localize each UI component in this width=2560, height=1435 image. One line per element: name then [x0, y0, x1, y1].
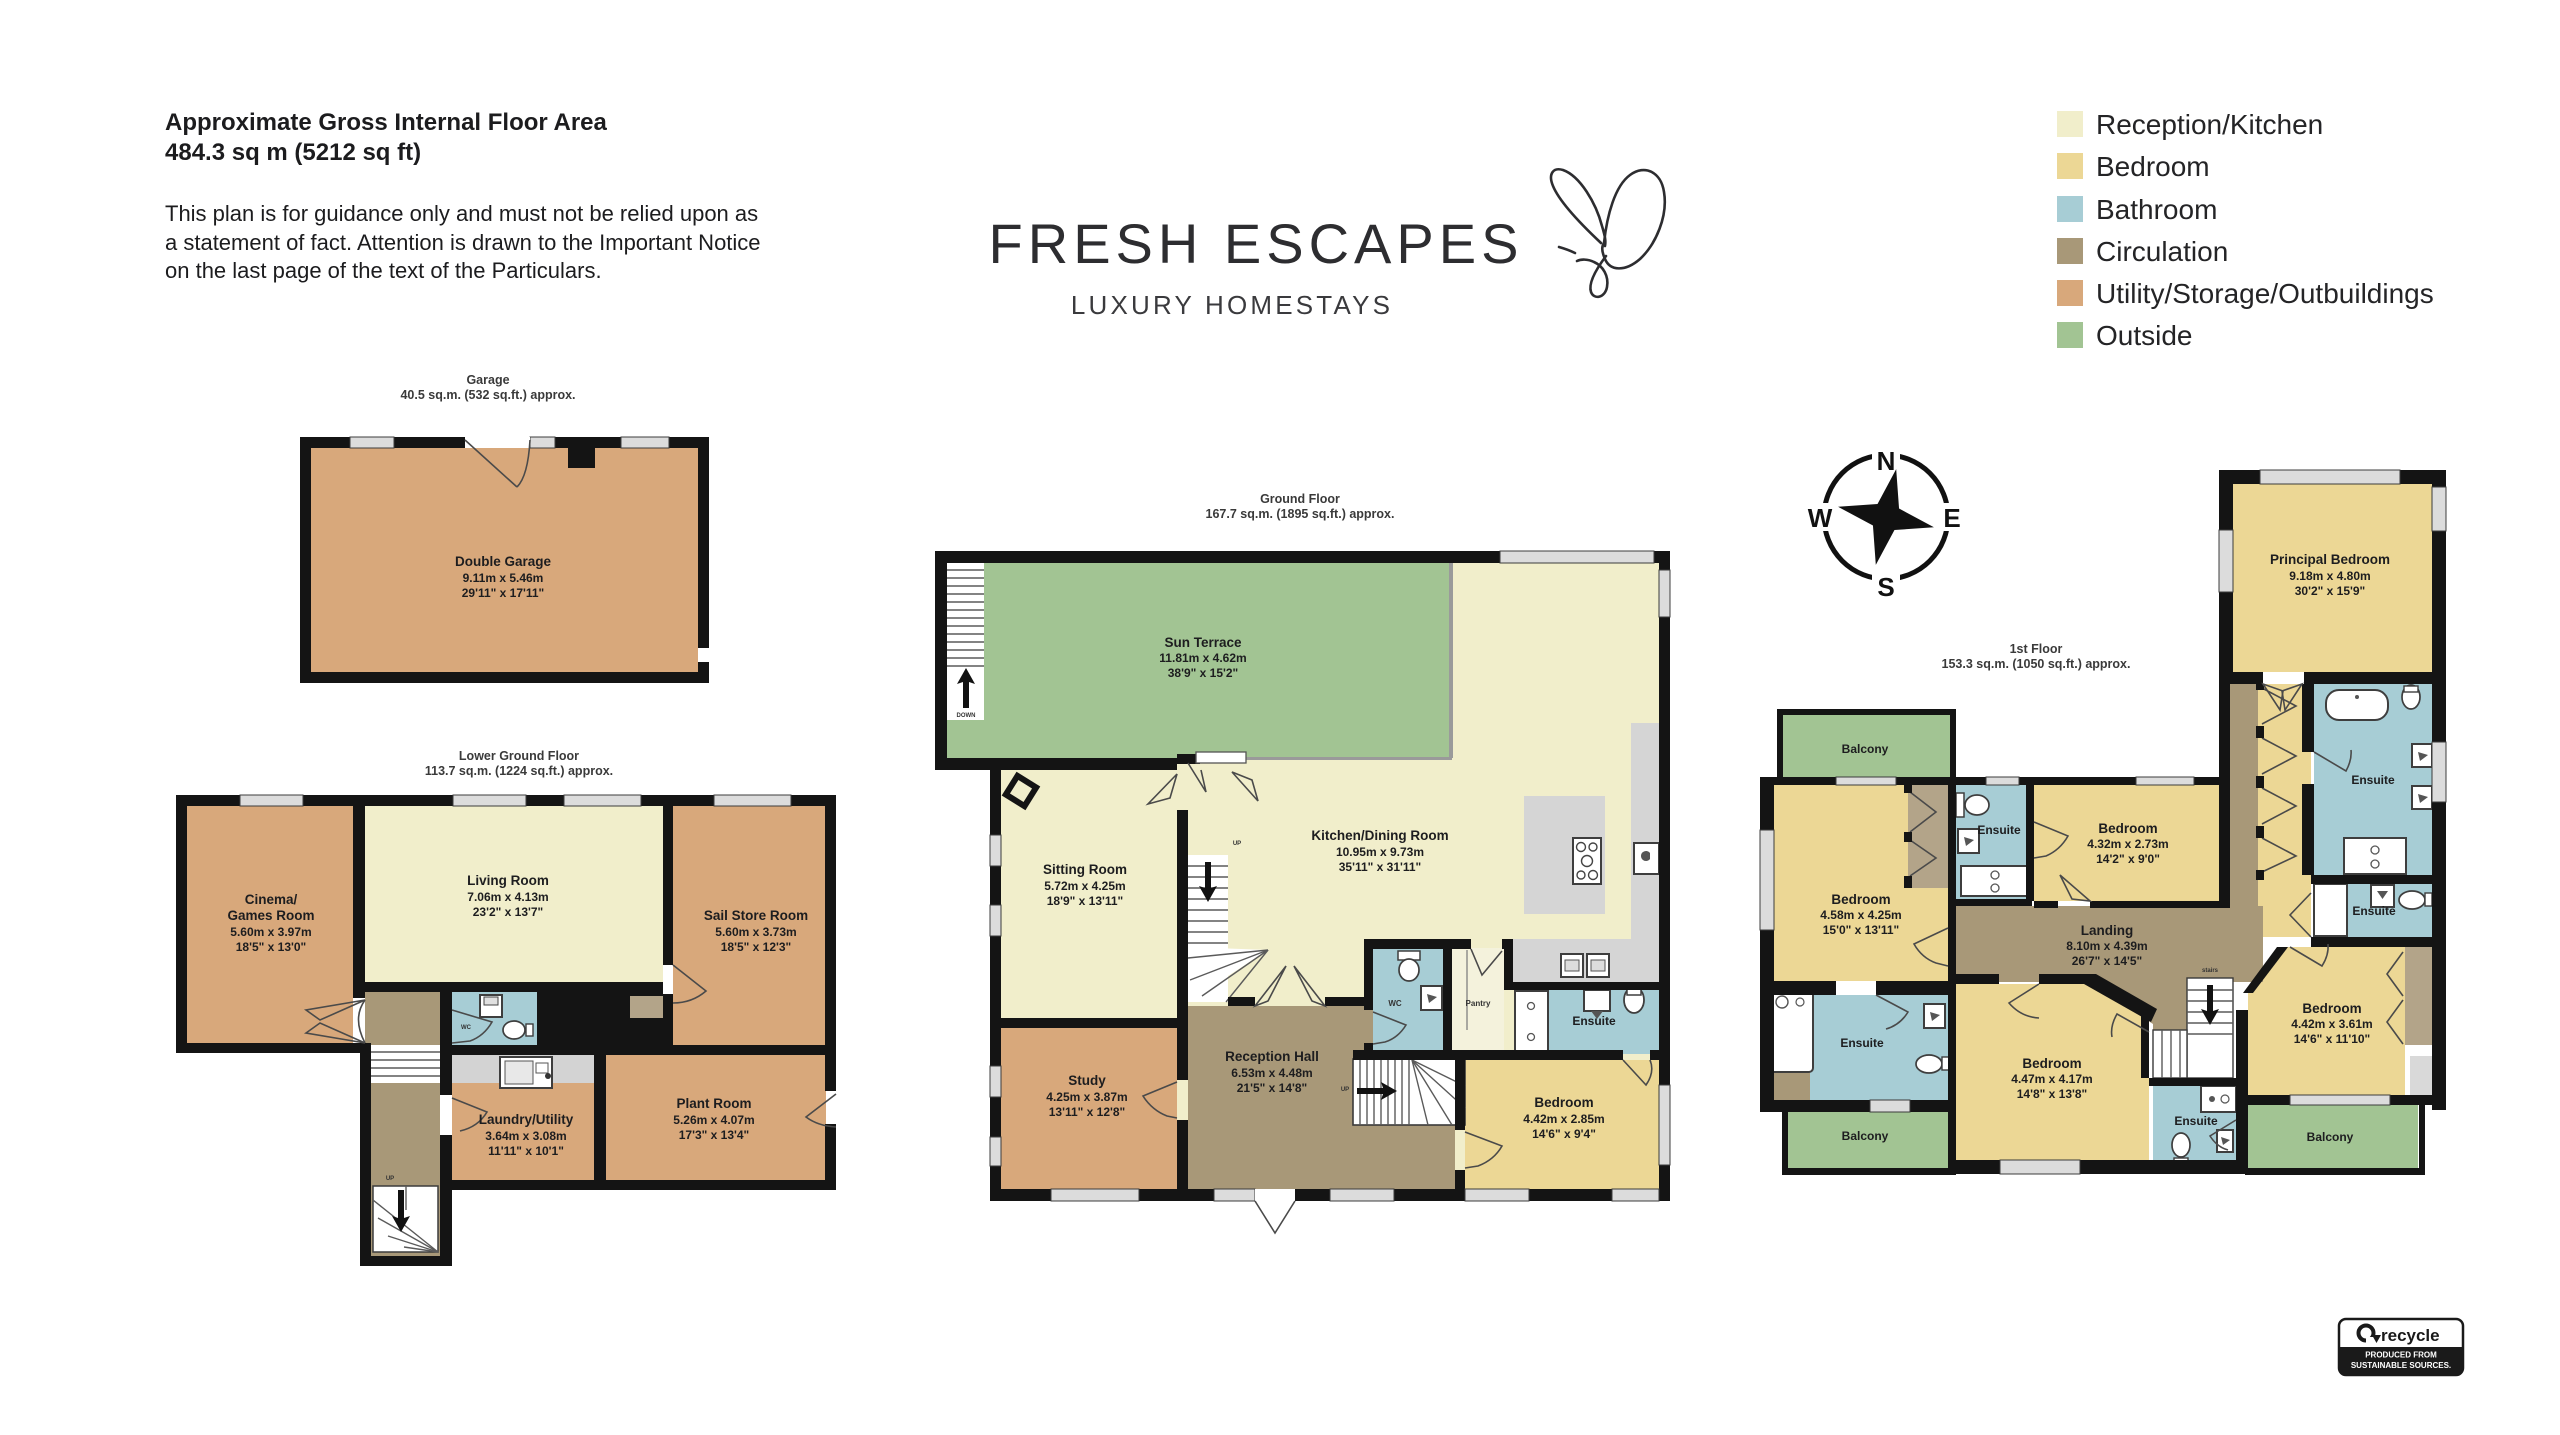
svg-text:5.60m x 3.97m: 5.60m x 3.97m — [230, 925, 311, 939]
svg-text:Laundry/Utility: Laundry/Utility — [479, 1112, 574, 1127]
svg-text:21'5" x 14'8": 21'5" x 14'8" — [1237, 1081, 1307, 1095]
svg-text:UP: UP — [1233, 841, 1241, 847]
svg-text:Principal Bedroom: Principal Bedroom — [2270, 552, 2390, 567]
svg-text:on the last page of the text o: on the last page of the text of the Part… — [165, 258, 602, 283]
svg-text:10.95m x 9.73m: 10.95m x 9.73m — [1336, 845, 1424, 859]
svg-text:N: N — [1877, 446, 1896, 476]
svg-text:Outside: Outside — [2096, 320, 2193, 351]
svg-text:13'11" x 12'8": 13'11" x 12'8" — [1049, 1105, 1125, 1119]
svg-text:11'11" x 10'1": 11'11" x 10'1" — [488, 1144, 564, 1158]
svg-text:Double Garage: Double Garage — [455, 554, 552, 569]
svg-text:14'8" x 13'8": 14'8" x 13'8" — [2017, 1087, 2087, 1101]
svg-text:Garage: Garage — [466, 373, 509, 387]
svg-text:5.26m x 4.07m: 5.26m x 4.07m — [673, 1113, 754, 1127]
svg-text:Study: Study — [1068, 1073, 1106, 1088]
svg-text:153.3 sq.m. (1050 sq.ft.) appr: 153.3 sq.m. (1050 sq.ft.) approx. — [1942, 657, 2131, 671]
svg-text:Games Room: Games Room — [227, 908, 314, 923]
svg-text:Ensuite: Ensuite — [2174, 1114, 2218, 1128]
svg-text:6.53m x 4.48m: 6.53m x 4.48m — [1231, 1066, 1312, 1080]
svg-text:484.3 sq m (5212 sq ft): 484.3 sq m (5212 sq ft) — [165, 139, 421, 166]
svg-text:30'2" x 15'9": 30'2" x 15'9" — [2295, 584, 2365, 598]
svg-text:stairs: stairs — [2202, 968, 2219, 974]
svg-text:18'9" x 13'11": 18'9" x 13'11" — [1047, 894, 1123, 908]
svg-text:4.42m x 2.85m: 4.42m x 2.85m — [1523, 1112, 1604, 1126]
svg-text:38'9" x 15'2": 38'9" x 15'2" — [1168, 666, 1238, 680]
svg-text:UP: UP — [1341, 1087, 1349, 1093]
svg-text:Bedroom: Bedroom — [1831, 892, 1890, 907]
svg-text:S: S — [1877, 572, 1894, 602]
svg-text:recycle: recycle — [2381, 1326, 2440, 1345]
svg-text:Sitting Room: Sitting Room — [1043, 862, 1127, 877]
svg-text:FRESH ESCAPES: FRESH ESCAPES — [989, 212, 1524, 275]
svg-text:Ensuite: Ensuite — [1977, 823, 2021, 837]
svg-text:14'6" x 9'4": 14'6" x 9'4" — [1532, 1127, 1596, 1141]
svg-text:Balcony: Balcony — [1842, 742, 1889, 756]
svg-text:Utility/Storage/Outbuildings: Utility/Storage/Outbuildings — [2096, 278, 2434, 309]
svg-text:WC: WC — [461, 1025, 472, 1031]
svg-text:23'2" x 13'7": 23'2" x 13'7" — [473, 905, 543, 919]
svg-text:Sun Terrace: Sun Terrace — [1164, 635, 1242, 650]
svg-text:Lower Ground Floor: Lower Ground Floor — [459, 749, 579, 763]
svg-text:4.47m x 4.17m: 4.47m x 4.17m — [2011, 1072, 2092, 1086]
svg-text:8.10m x 4.39m: 8.10m x 4.39m — [2066, 939, 2147, 953]
svg-text:LUXURY HOMESTAYS: LUXURY HOMESTAYS — [1071, 290, 1393, 320]
svg-text:Bathroom: Bathroom — [2096, 194, 2217, 225]
svg-text:SUSTAINABLE SOURCES.: SUSTAINABLE SOURCES. — [2351, 1361, 2451, 1370]
svg-text:Bedroom: Bedroom — [1534, 1095, 1593, 1110]
svg-text:5.60m x 3.73m: 5.60m x 3.73m — [715, 925, 796, 939]
svg-text:Reception Hall: Reception Hall — [1225, 1049, 1319, 1064]
svg-text:Ground Floor: Ground Floor — [1260, 492, 1340, 506]
svg-text:4.42m x 3.61m: 4.42m x 3.61m — [2291, 1017, 2372, 1031]
svg-text:E: E — [1943, 503, 1960, 533]
svg-text:Approximate Gross Internal Flo: Approximate Gross Internal Floor Area — [165, 109, 608, 136]
svg-text:Kitchen/Dining Room: Kitchen/Dining Room — [1311, 828, 1448, 843]
svg-text:Circulation: Circulation — [2096, 236, 2228, 267]
svg-text:Ensuite: Ensuite — [2352, 904, 2396, 918]
svg-text:14'6" x 11'10": 14'6" x 11'10" — [2294, 1032, 2370, 1046]
svg-text:Landing: Landing — [2081, 923, 2134, 938]
svg-text:PRODUCED FROM: PRODUCED FROM — [2365, 1351, 2437, 1360]
svg-text:Plant Room: Plant Room — [676, 1096, 751, 1111]
svg-text:15'0" x 13'11": 15'0" x 13'11" — [1823, 923, 1899, 937]
svg-text:Reception/Kitchen: Reception/Kitchen — [2096, 109, 2323, 140]
svg-text:Living Room: Living Room — [467, 873, 549, 888]
svg-text:11.81m x 4.62m: 11.81m x 4.62m — [1159, 651, 1246, 665]
svg-text:26'7" x 14'5": 26'7" x 14'5" — [2072, 954, 2142, 968]
svg-text:9.18m x 4.80m: 9.18m x 4.80m — [2289, 569, 2370, 583]
svg-text:29'11" x 17'11": 29'11" x 17'11" — [462, 586, 545, 600]
svg-text:W: W — [1808, 503, 1833, 533]
svg-text:40.5 sq.m. (532 sq.ft.) approx: 40.5 sq.m. (532 sq.ft.) approx. — [400, 388, 575, 402]
svg-text:Ensuite: Ensuite — [2351, 773, 2395, 787]
svg-text:17'3" x 13'4": 17'3" x 13'4" — [679, 1128, 749, 1142]
svg-text:7.06m x 4.13m: 7.06m x 4.13m — [467, 890, 548, 904]
svg-text:a statement of fact. Attention: a statement of fact. Attention is drawn … — [165, 230, 761, 255]
svg-text:Ensuite: Ensuite — [1572, 1014, 1616, 1028]
svg-text:14'2" x 9'0": 14'2" x 9'0" — [2096, 852, 2160, 866]
svg-text:3.64m x 3.08m: 3.64m x 3.08m — [485, 1129, 566, 1143]
svg-text:18'5" x 12'3": 18'5" x 12'3" — [721, 940, 791, 954]
svg-text:Bedroom: Bedroom — [2022, 1056, 2081, 1071]
svg-text:Cinema/: Cinema/ — [245, 892, 298, 907]
svg-text:WC: WC — [1388, 999, 1402, 1008]
svg-text:DOWN: DOWN — [957, 713, 976, 719]
svg-text:UP: UP — [386, 1176, 394, 1182]
svg-text:Bedroom: Bedroom — [2096, 151, 2210, 182]
svg-text:Bedroom: Bedroom — [2098, 821, 2157, 836]
svg-text:Sail Store Room: Sail Store Room — [704, 908, 808, 923]
svg-text:Bedroom: Bedroom — [2302, 1001, 2361, 1016]
svg-text:Ensuite: Ensuite — [1840, 1036, 1884, 1050]
svg-text:4.58m x 4.25m: 4.58m x 4.25m — [1820, 908, 1901, 922]
svg-text:35'11" x 31'11": 35'11" x 31'11" — [1339, 860, 1422, 874]
svg-text:18'5" x 13'0": 18'5" x 13'0" — [236, 940, 306, 954]
svg-text:Balcony: Balcony — [2307, 1130, 2354, 1144]
svg-text:Pantry: Pantry — [1466, 999, 1491, 1008]
svg-text:113.7 sq.m. (1224 sq.ft.) appr: 113.7 sq.m. (1224 sq.ft.) approx. — [425, 764, 613, 778]
svg-text:9.11m x 5.46m: 9.11m x 5.46m — [463, 571, 544, 585]
svg-text:4.25m x 3.87m: 4.25m x 3.87m — [1046, 1090, 1127, 1104]
svg-text:4.32m x 2.73m: 4.32m x 2.73m — [2087, 837, 2168, 851]
svg-text:5.72m x 4.25m: 5.72m x 4.25m — [1044, 879, 1125, 893]
svg-text:167.7 sq.m. (1895 sq.ft.) appr: 167.7 sq.m. (1895 sq.ft.) approx. — [1206, 507, 1395, 521]
svg-text:1st Floor: 1st Floor — [2010, 642, 2063, 656]
svg-text:This plan is for guidance only: This plan is for guidance only and must … — [165, 201, 758, 226]
svg-text:Balcony: Balcony — [1842, 1129, 1889, 1143]
